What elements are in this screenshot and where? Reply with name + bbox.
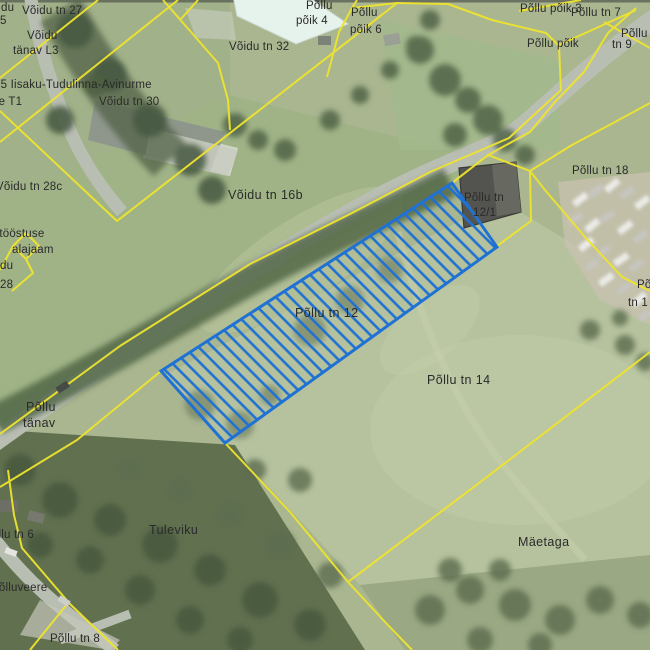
map-viewport[interactable]: du 5 Võidu tn 27 Võidu tänav L3 35 Iisak… <box>0 0 650 650</box>
aerial-basemap <box>0 0 650 650</box>
building-small <box>0 500 18 512</box>
building-12-1-roof-light <box>492 162 521 216</box>
shed <box>318 36 331 45</box>
